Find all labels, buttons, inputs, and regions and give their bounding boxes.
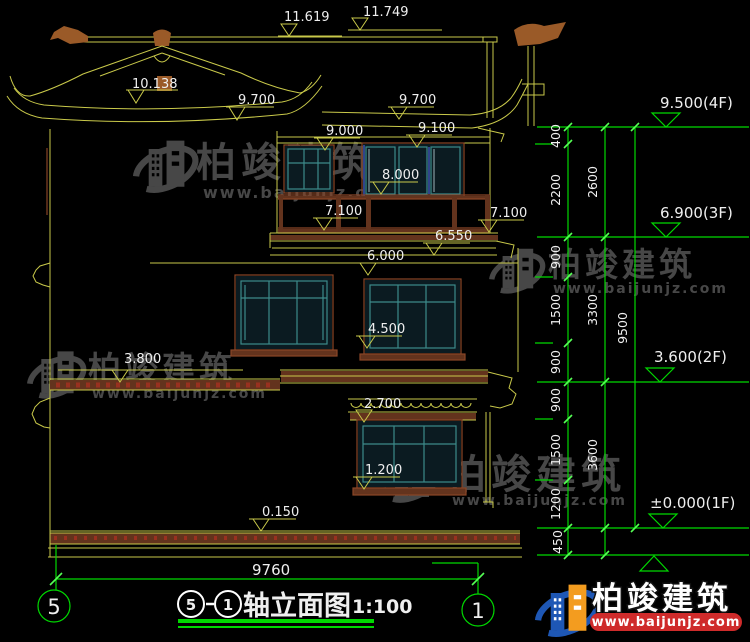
watermark-mid-right: 柏竣建筑 www.baijunjz.com [492,245,728,297]
title-name: 轴立面图 [243,590,351,622]
fourth-floor-balcony [270,128,514,258]
dim-3300: 3300 [585,294,600,326]
level-10138: 10.138 [132,77,178,92]
plinth-base [48,531,522,557]
dim-9500: 9500 [615,312,630,344]
level-7100-right: 7.100 [490,206,527,221]
bottom-dimension: 9760 [50,545,484,594]
dim-2600: 2600 [585,166,600,198]
level-8000: 8.000 [382,168,419,183]
ground-level-symbol [640,556,668,571]
ridge-beam-left-ornament [50,26,88,44]
wall-corbel-upper [33,263,50,287]
watermark-top-left: 柏竣建筑 www.baijunjz.com [136,140,398,202]
overall-width-dim: 9760 [252,561,290,579]
gable-finial [153,30,171,47]
dim-450: 450 [550,530,565,554]
level-9100: 9.100 [418,121,455,136]
level-4500: 4.500 [368,322,405,337]
level-9000: 9.000 [326,124,363,139]
dim-900c: 900 [548,388,563,412]
level-1200: 1.200 [365,463,402,478]
drawing-title: 5 1 轴立面图 1:100 [178,590,412,628]
axis-bubble-left: 5 [47,595,60,619]
left-wall [32,129,50,531]
level-11619: 11.619 [284,10,330,25]
level-9700-left: 9.700 [238,93,275,108]
window-3f-left [231,275,337,356]
dim-1200: 1200 [548,488,563,520]
watermark-url: www.baijunjz.com [553,281,728,297]
drawing-canvas: 柏竣建筑 www.baijunjz.com 柏竣建筑 www.baijunjz.… [0,0,750,642]
title-scale: 1:100 [352,596,412,618]
brand-url: www.baijunjz.com [592,615,741,630]
level-9700-right: 9.700 [399,93,436,108]
level-11749: 11.749 [363,5,409,20]
window-3f-right [360,279,465,360]
dim-900b: 900 [548,350,563,374]
level-6000: 6.000 [367,249,404,264]
title-axis-to: 1 [223,596,233,614]
dim-1500a: 1500 [548,294,563,326]
watermark-url: www.baijunjz.com [452,493,627,509]
level-3800: 3.800 [124,352,161,367]
dim-2200: 2200 [548,174,563,206]
title-underline-thick [178,619,374,623]
floor-level-4f: 9.500(4F) [660,94,733,112]
floor-level-3f: 6.900(3F) [660,204,733,222]
floor-level-1f: ±0.000(1F) [650,494,735,512]
wall-corbel-lower [32,398,50,428]
cad-elevation-drawing: 柏竣建筑 www.baijunjz.com 柏竣建筑 www.baijunjz.… [0,0,750,642]
dim-400: 400 [548,124,563,148]
title-underline-thin [178,626,374,628]
brand-logo-icon [538,585,597,634]
ridge-ornament-right [514,22,566,46]
window-4f-left [284,145,334,193]
brand-logo: 柏竣建筑 www.baijunjz.com [538,581,742,634]
cornice-bracket-right [488,372,516,408]
title-axis-from: 5 [186,596,196,614]
axis-bubble-right: 1 [471,599,484,623]
dim-900a: 900 [548,245,563,269]
brand-name: 柏竣建筑 [592,581,732,617]
dim-1500b: 1500 [548,434,563,466]
level-0150: 0.150 [262,505,299,520]
level-6550: 6.550 [435,229,472,244]
watermark-name: 柏竣建筑 [548,245,696,284]
roof-structure [7,22,566,142]
floor-level-2f: 3.600(2F) [654,348,727,366]
dim-3600: 3600 [585,439,600,471]
level-2700: 2.700 [364,397,401,412]
level-7100-left: 7.100 [325,204,362,219]
